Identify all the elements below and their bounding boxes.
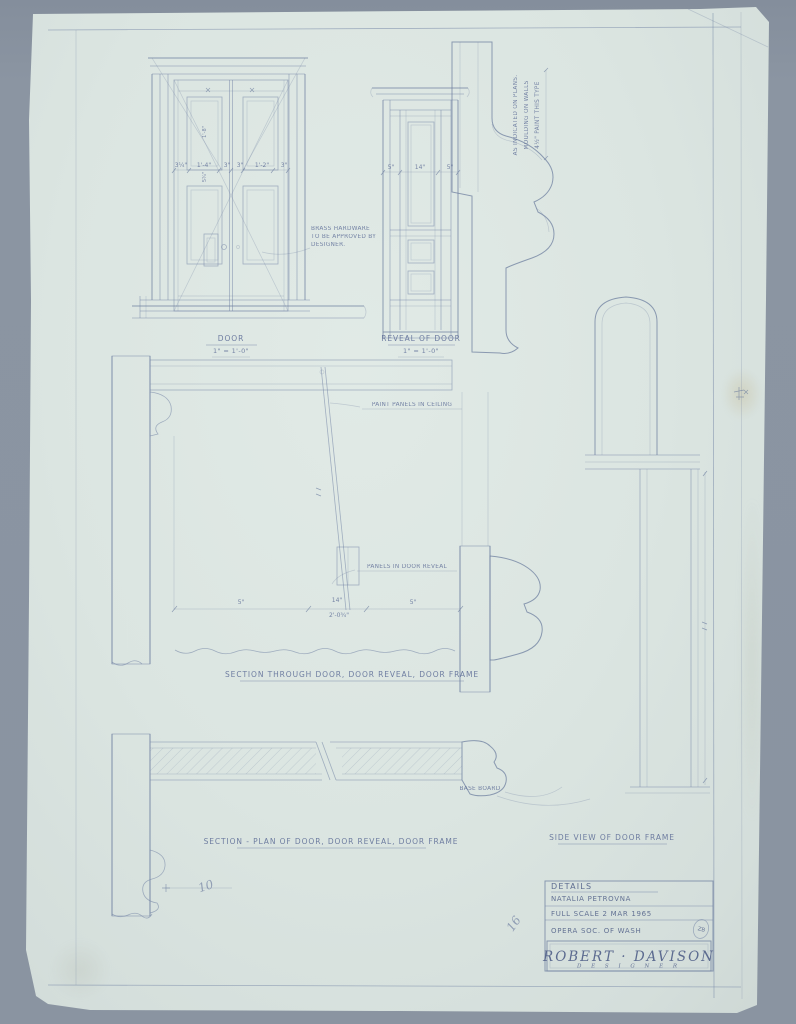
pencil-scribble: 16 <box>504 913 524 934</box>
section-dim: 2'-0¾" <box>329 612 349 619</box>
baseboard-note: BASE BOARD <box>460 786 501 792</box>
section-dim: 5" <box>410 599 417 606</box>
reveal-dim: 5" <box>447 164 454 171</box>
reveal-scale: 1" = 1'-0" <box>403 347 439 355</box>
section-drawing <box>112 356 542 692</box>
monogram-stamp: ZB <box>697 926 706 934</box>
hardware-note: BRASS HARDWARE <box>311 226 370 232</box>
door-label: DOOR <box>218 334 244 343</box>
section-dim: 14" <box>332 597 343 604</box>
moulding-note: 4½" PAINT THIS TYPE <box>534 81 541 148</box>
moulding-note: AS INDICATED ON PLANS. <box>513 75 519 156</box>
hardware-note: TO BE APPROVED BY <box>310 234 376 240</box>
title-block-scale: FULL SCALE 2 MAR 1965 <box>551 910 652 918</box>
door-dim: 1'-4" <box>197 162 211 169</box>
moulding-note: MOULDING ON WALLS <box>524 80 530 149</box>
photo-background: 3¼" 1'-4" 3" 3" 1'-2" 3" 1'-8" 5¾" DOOR … <box>0 0 796 1024</box>
door-elevation-drawing <box>132 58 366 318</box>
door-dim: 1'-2" <box>255 162 269 169</box>
reveal-label: REVEAL OF DOOR <box>381 334 461 343</box>
reveal-elevation-drawing <box>371 88 470 338</box>
plan-label: SECTION - PLAN OF DOOR, DOOR REVEAL, DOO… <box>204 837 459 846</box>
pencil-drawing-layer: 3¼" 1'-4" 3" 3" 1'-2" 3" 1'-8" 5¾" DOOR … <box>0 0 796 1024</box>
door-panel-dim: 1'-8" <box>202 126 208 138</box>
door-scale: 1" = 1'-0" <box>213 347 249 355</box>
door-dim: 3" <box>237 162 244 169</box>
title-block-title: DETAILS <box>551 882 592 891</box>
door-dim: 3" <box>281 162 288 169</box>
door-dim: 3" <box>224 162 231 169</box>
stray-pencil-marks <box>734 387 748 400</box>
door-dim: 3¼" <box>175 162 188 169</box>
hardware-note: DESIGNER. <box>311 242 345 248</box>
door-panel-dim: 5¾" <box>202 172 208 182</box>
designer-role: D E S I G N E R <box>576 964 681 970</box>
title-block-project: NATALIA PETROVNA <box>551 895 631 903</box>
drafting-paper-sheet: 3¼" 1'-4" 3" 3" 1'-2" 3" 1'-8" 5¾" DOOR … <box>0 0 796 1024</box>
plan-section-drawing <box>112 734 590 918</box>
section-label: SECTION THROUGH DOOR, DOOR REVEAL, DOOR … <box>225 670 479 679</box>
section-dim: 5" <box>238 599 245 606</box>
ceiling-note: PAINT PANELS IN CEILING <box>372 402 453 408</box>
side-view-drawing <box>585 297 710 793</box>
title-block-client: OPERA SOC. OF WASH <box>551 927 641 935</box>
reveal-dim: 14" <box>415 164 426 171</box>
side-view-label: SIDE VIEW OF DOOR FRAME <box>549 833 675 842</box>
reveal-dim: 5" <box>388 164 395 171</box>
detail-number-mark: 10 <box>196 877 215 895</box>
reveal-panels-note: PANELS IN DOOR REVEAL <box>367 564 447 570</box>
